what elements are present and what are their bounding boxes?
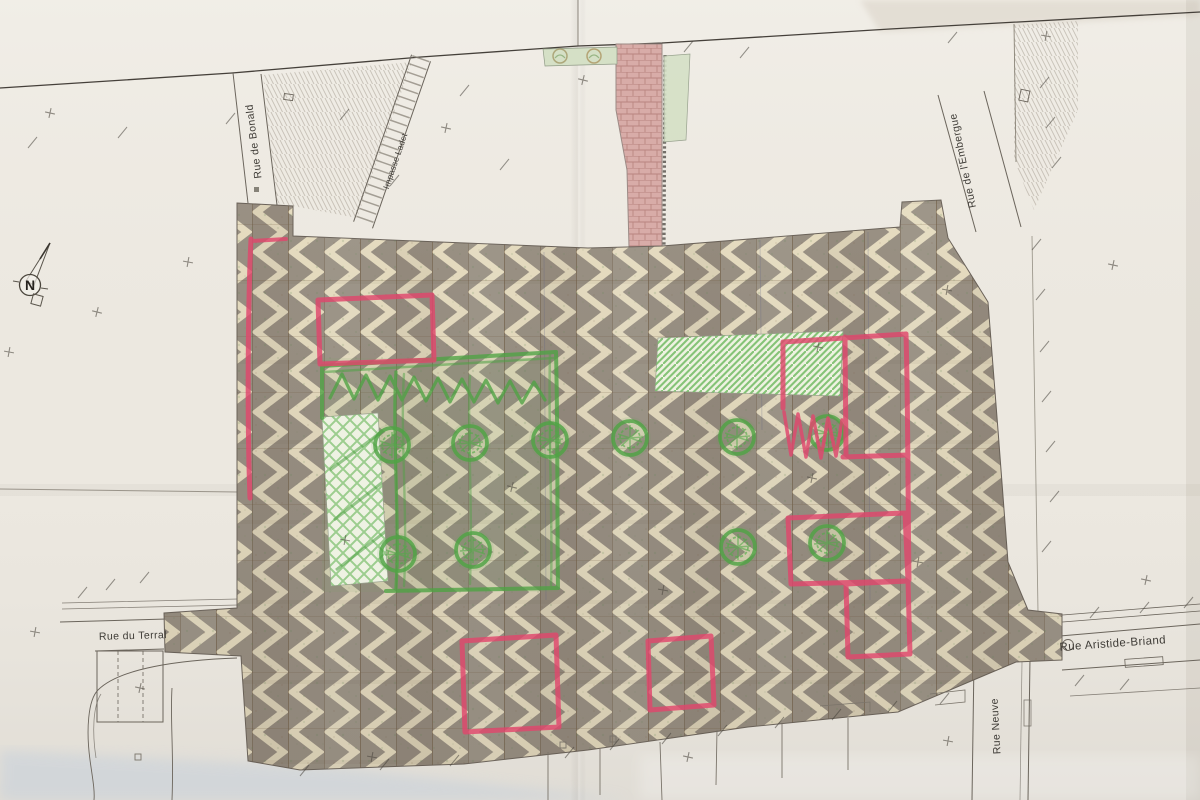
- north-label: N: [25, 277, 35, 293]
- plan-canvas: N Rue de Bonald Impasse Ladet Rue de l'E…: [0, 0, 1200, 800]
- site-plan-photo: N Rue de Bonald Impasse Ladet Rue de l'E…: [0, 0, 1200, 800]
- green-zone-outline-right: [556, 352, 558, 588]
- tree-annotation: [609, 417, 651, 459]
- tree-annotation: [452, 529, 494, 571]
- tree-annotation: [371, 424, 413, 466]
- red-line-west-edge: [248, 239, 251, 498]
- green-strip-north: [543, 47, 617, 66]
- label-rue-du-terral: Rue du Terral: [99, 629, 167, 643]
- tree-annotation: [529, 419, 571, 461]
- tree-annotation: [449, 422, 491, 464]
- tree-annotation: [377, 533, 419, 575]
- tree-annotation: [806, 522, 848, 564]
- green-sliver-east: [664, 54, 690, 142]
- tree-annotation: [716, 416, 758, 458]
- tree-annotation: [717, 526, 759, 568]
